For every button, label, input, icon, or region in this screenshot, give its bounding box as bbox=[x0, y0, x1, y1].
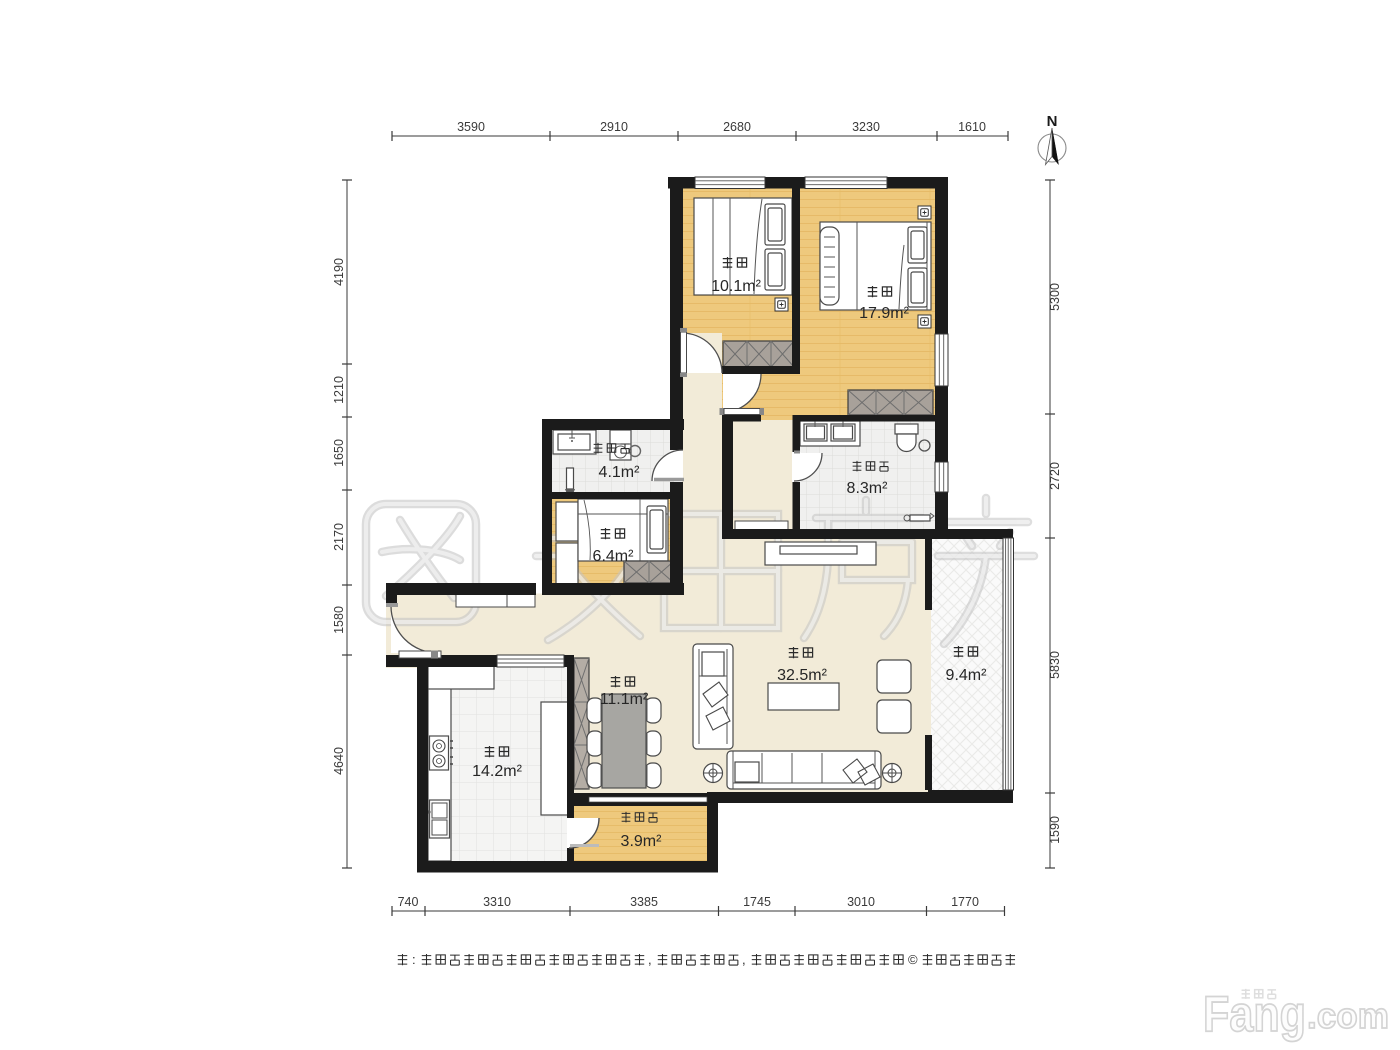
svg-text:2720: 2720 bbox=[1048, 462, 1062, 490]
svg-text:3385: 3385 bbox=[630, 895, 658, 909]
svg-text:6.4m²: 6.4m² bbox=[593, 548, 635, 565]
svg-text:14.2m²: 14.2m² bbox=[472, 763, 522, 780]
svg-text:8.3m²: 8.3m² bbox=[847, 480, 889, 497]
svg-text:17.9m²: 17.9m² bbox=[859, 305, 909, 322]
svg-text:1650: 1650 bbox=[332, 439, 346, 467]
svg-text:10.1m²: 10.1m² bbox=[711, 278, 761, 295]
svg-text:5300: 5300 bbox=[1048, 283, 1062, 311]
svg-text:1210: 1210 bbox=[332, 376, 346, 404]
svg-text:1590: 1590 bbox=[1048, 816, 1062, 844]
svg-text:,: , bbox=[742, 952, 746, 967]
svg-text:,: , bbox=[648, 952, 652, 967]
svg-text:3590: 3590 bbox=[457, 120, 485, 134]
svg-text:9.4m²: 9.4m² bbox=[946, 667, 988, 684]
svg-text:2910: 2910 bbox=[600, 120, 628, 134]
svg-text:4640: 4640 bbox=[332, 747, 346, 775]
svg-text:©: © bbox=[908, 952, 918, 967]
svg-text:32.5m²: 32.5m² bbox=[777, 667, 827, 684]
svg-text:1745: 1745 bbox=[743, 895, 771, 909]
svg-text:Fang: Fang bbox=[1203, 986, 1306, 1042]
svg-text:3010: 3010 bbox=[847, 895, 875, 909]
svg-text:1610: 1610 bbox=[958, 120, 986, 134]
svg-text:1580: 1580 bbox=[332, 606, 346, 634]
svg-text:.com: .com bbox=[1307, 995, 1389, 1036]
svg-text:740: 740 bbox=[398, 895, 419, 909]
svg-text:2170: 2170 bbox=[332, 523, 346, 551]
svg-text:11.1m²: 11.1m² bbox=[600, 691, 649, 708]
svg-text:4.1m²: 4.1m² bbox=[599, 464, 641, 481]
svg-text:2680: 2680 bbox=[723, 120, 751, 134]
svg-text:3.9m²: 3.9m² bbox=[621, 833, 663, 850]
svg-text:1770: 1770 bbox=[951, 895, 979, 909]
svg-text:N: N bbox=[1047, 113, 1058, 130]
svg-text:3230: 3230 bbox=[852, 120, 880, 134]
svg-text::: : bbox=[412, 952, 416, 967]
svg-text:5830: 5830 bbox=[1048, 651, 1062, 679]
svg-text:4190: 4190 bbox=[332, 258, 346, 286]
svg-text:3310: 3310 bbox=[483, 895, 511, 909]
